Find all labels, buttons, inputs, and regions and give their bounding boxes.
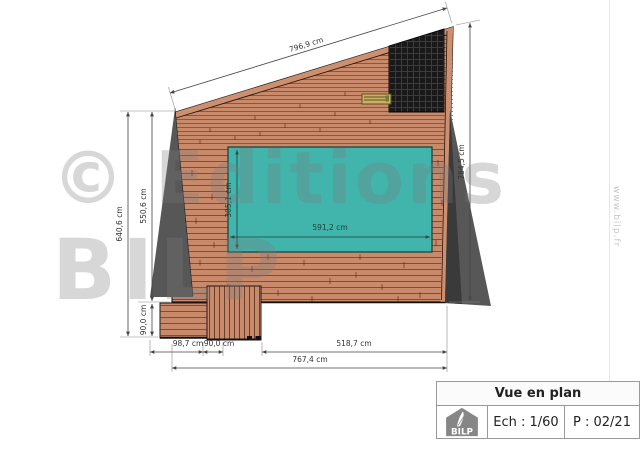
vent-hatch bbox=[362, 94, 391, 104]
dim-bottom-step2-label: 90,0 cm bbox=[204, 339, 235, 348]
dim-bottom-step1: 98,7 cm bbox=[150, 339, 203, 356]
step-foot-1 bbox=[247, 336, 252, 340]
step-foot-2 bbox=[256, 336, 261, 340]
dim-left-upper-label: 550,6 cm bbox=[139, 188, 148, 223]
grid-panel bbox=[389, 29, 444, 112]
dim-bottom-total: 767,4 cm bbox=[172, 344, 447, 372]
bilp-logo-icon: BILP bbox=[442, 407, 482, 437]
dim-pool-height-label: 305,1 cm bbox=[224, 182, 233, 217]
dim-bottom-right-label: 518,7 cm bbox=[336, 339, 371, 348]
dim-left-lower-label: 90,0 cm bbox=[139, 305, 148, 336]
title-block: Vue en plan BILP Ech : 1/60 P : 02/21 bbox=[436, 381, 640, 439]
title-block-title: Vue en plan bbox=[437, 382, 639, 406]
dim-right-height-label: 784,5 cm bbox=[457, 144, 466, 179]
bilp-logo: BILP bbox=[437, 406, 488, 438]
title-block-page: P : 02/21 bbox=[564, 406, 639, 438]
dim-bottom-step2: 90,0 cm bbox=[203, 339, 234, 356]
watermark-website: www.bilp.fr bbox=[611, 186, 621, 247]
dim-left-total-label: 640,6 cm bbox=[115, 206, 124, 241]
dim-left-lower: 90,0 cm bbox=[139, 304, 152, 336]
side-wall-right bbox=[445, 110, 491, 306]
bilp-logo-text: BILP bbox=[451, 427, 474, 437]
swimming-pool bbox=[228, 147, 432, 252]
dim-bottom-total-label: 767,4 cm bbox=[292, 355, 327, 364]
plan-page: 796,9 cm 784,5 cm 640,6 cm 550,6 cm 90,0… bbox=[0, 0, 640, 452]
dim-bottom-right: 518,7 cm bbox=[262, 306, 447, 372]
title-block-row: BILP Ech : 1/60 P : 02/21 bbox=[437, 406, 639, 438]
dim-bottom-step1-label: 98,7 cm bbox=[173, 339, 204, 348]
dim-pool-width-label: 591,2 cm bbox=[312, 223, 347, 232]
vent-hatch-latch bbox=[386, 96, 390, 102]
title-block-scale: Ech : 1/60 bbox=[488, 406, 564, 438]
